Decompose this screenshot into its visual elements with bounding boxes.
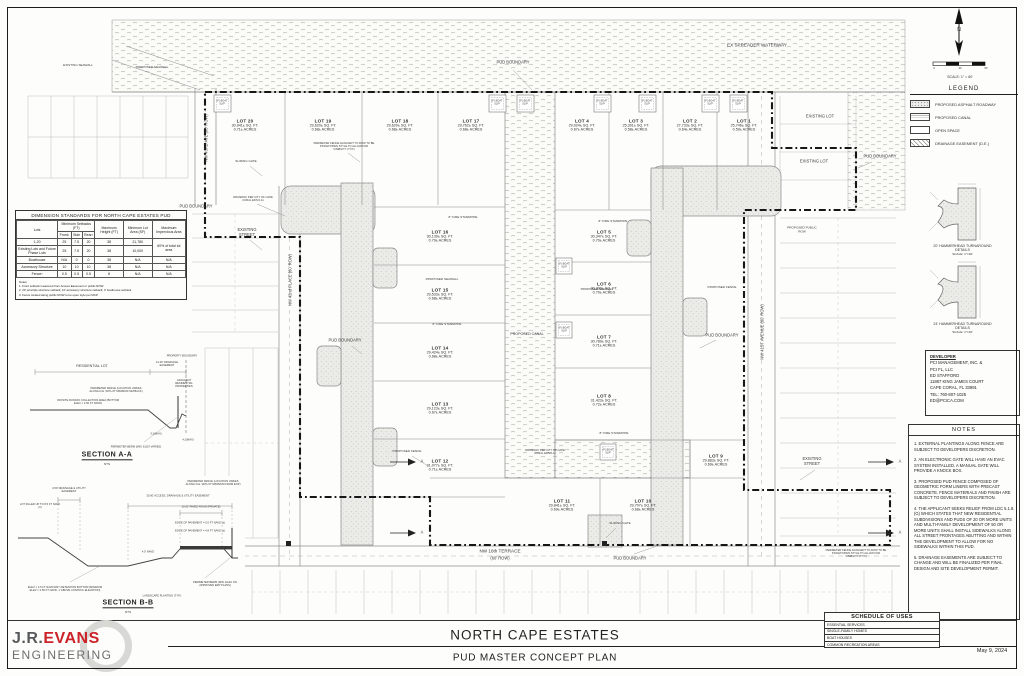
section-marker-a: A xyxy=(421,531,424,536)
driveway-note: DRIVEWAY PER CITY OF CAPE CORAL EDS-5-11 xyxy=(523,449,567,455)
existing-lot-label: EXISTING LOT xyxy=(800,160,828,165)
canal-label: PROPOSED CANAL xyxy=(510,332,544,336)
section-a-label: PERIMETER BERM (MIN. ELEV VARIES) xyxy=(110,445,162,448)
dimension-table-notes: Notes: 1. Front setback measured from Ac… xyxy=(16,278,186,298)
notes-panel: NOTES 1. EXTERNAL PLANTINGS ALONG FENCE … xyxy=(908,424,1020,620)
lot-label: LOT 1429,424± SQ. FT.0.68± ACRES xyxy=(404,346,476,359)
note-item: 4. THE APPLICANT SEEKS RELIEF FROM LDC 5… xyxy=(914,506,1015,550)
boat-slip: (F) BOAT SLIP xyxy=(596,100,609,105)
lot-label: LOT 1630,139± SQ. FT.0.70± ACRES xyxy=(404,230,476,243)
existing-lot-label: EXISTING LOT xyxy=(806,115,834,120)
boat-slip: (F) BOAT SLIP xyxy=(704,100,717,105)
existing-seawall-note: EXISTING SEAWALL xyxy=(61,64,95,68)
dimension-table-grid: Lots Minimum Setbacks (FT) Maximum Heigh… xyxy=(16,220,186,278)
lot-label: LOT 429,024± SQ. FT.0.67± ACRES xyxy=(546,119,618,132)
table-row: Fence³0.50.50.58N/AN/A xyxy=(17,271,186,278)
schedule-of-uses: SCHEDULE OF USES ESSENTIAL SERVICES SING… xyxy=(824,612,940,648)
boat-slip: (F) BOAT SLIP xyxy=(491,100,504,105)
section-b-label: LANDSCAPE PLANTING (TYP.) xyxy=(140,594,184,597)
scale-tick: 30 xyxy=(956,67,964,70)
logo-engineering: ENGINEERING xyxy=(12,648,113,662)
section-a-panel: RESIDENTIAL LOT 12.00' DRAINAGE EASEMENT… xyxy=(12,352,197,470)
street-nw42: NW 42nd PLACE (60' ROW) xyxy=(288,254,293,306)
lot-label: LOT 1729,762± SQ. FT.0.68± ACRES xyxy=(435,119,507,132)
legend-row: PROPOSED ASPHALT ROADWAY xyxy=(910,100,1018,108)
legend-row: PROPOSED CANAL xyxy=(910,113,1018,121)
legend-title: LEGEND xyxy=(910,86,1018,95)
legend-row: OPEN SPACE xyxy=(910,126,1018,134)
lot-label: LOT 929,883± SQ. FT.0.69± ACRES xyxy=(680,454,752,467)
table-row: 1-20257.5203821,78060% of total lot area xyxy=(17,239,186,246)
section-a-title: SECTION A-A xyxy=(82,451,133,460)
lot-label: LOT 730,789± SQ. FT.0.71± ACRES xyxy=(568,335,640,348)
pud-boundary-label: PUD BOUNDARY xyxy=(704,334,740,339)
street-nw16-row: (60' ROW) xyxy=(490,557,509,562)
pud-boundary-label: PUD BOUNDARY xyxy=(327,339,363,344)
boat-slip: (F) BOAT SLIP xyxy=(558,327,571,332)
lot-label: LOT 1129,841± SQ. FT.0.69± ACRES xyxy=(526,499,598,512)
pud-boundary-label: PUD BOUNDARY xyxy=(495,61,531,66)
section-a-label: PROPERTY BOUNDARY xyxy=(164,354,200,357)
section-b-label: 4.5' NAVD xyxy=(142,550,154,553)
proposed-public-row-note: PROPOSED PUBLIC ROW xyxy=(785,226,819,233)
table-row: Accessory Structure10101038N/AN/A xyxy=(17,264,186,271)
perimeter-fence-note: PERIMETER FENCE ADJACENT TO ROW TO BE PI… xyxy=(313,142,375,152)
lot-label: LOT 1529,533± SQ. FT.0.68± ACRES xyxy=(404,288,476,301)
section-a-label: RESIDENTIAL LOT xyxy=(76,364,107,368)
pud-boundary-label: PUD BOUNDARY xyxy=(178,205,214,210)
logo-wordmark: J.R.EVANS xyxy=(12,630,100,648)
section-a-label: PERIMETER FENCE (LOCATION VARIES ALONG D… xyxy=(87,387,145,393)
schedule-row: BOAT HOUSES xyxy=(825,635,939,642)
section-b-label: EDGE OF PAVEMENT = 4.8 FT NAVD (±) xyxy=(172,529,228,532)
pud-boundary-label: PUD BOUNDARY xyxy=(612,557,648,562)
section-b-label: PERIMETER FENCE (LOCATION VARIES ALONG D… xyxy=(183,480,243,486)
lot-label: LOT 831,423± SQ. FT.0.72± ACRES xyxy=(568,394,640,407)
section-b-label: 4.50' DRAINAGE & UTILITY EASEMENT xyxy=(49,487,89,493)
lot-label: LOT 1231,077± SQ. FT.0.71± ACRES xyxy=(404,459,476,472)
section-a-label: 12.00' DRAINAGE EASEMENT xyxy=(149,361,185,367)
lot-label: LOT 1029,707± SQ. FT.0.68± ACRES xyxy=(607,499,679,512)
lot-label: LOT 530,347± SQ. FT.0.70± ACRES xyxy=(568,230,640,243)
section-a-label: OFFSITE RUNOFF COLLECTION AREA (BOTTOM E… xyxy=(56,399,120,405)
asphalt-swatch xyxy=(910,100,930,108)
waterway-label: EX SPREADER WATERWAY xyxy=(727,42,787,48)
boat-slip: (F) BOAT SLIP xyxy=(519,100,532,105)
sliding-gate-note: SLIDING GATE xyxy=(609,522,630,526)
lot-label: LOT 630,300± SQ. FT.0.70± ACRES xyxy=(568,282,640,295)
dimension-standards-table: DIMENSION STANDARDS FOR NORTH CAPE ESTAT… xyxy=(15,210,187,300)
section-b-label: 30.00' ACCESS, DRAINAGE & UTILITY EASEME… xyxy=(141,494,215,497)
proposed-seawall-note: PROPOSED SEAWALL xyxy=(135,66,169,70)
lot-label: LOT 2030,941± SQ. FT.0.71± ACRES xyxy=(209,119,281,132)
lot-label: LOT 1929,620± SQ. FT.0.68± ACRES xyxy=(287,119,359,132)
plan-sheet: EX SPREADER WATERWAY PROPOSED CANAL PUD … xyxy=(0,0,1024,676)
section-b-label: 20.00' PAVED ROAD (PRIVATE) xyxy=(172,505,230,508)
section-b-label: ELEV = 2.5 FT NAVD DRY DETENTION BOTTOM … xyxy=(26,586,104,592)
street-nw41: NW 41ST AVENUE (60' ROW) xyxy=(760,304,765,359)
schedule-title: SCHEDULE OF USES xyxy=(825,613,939,622)
street-nw16: NW 16th TERRACE xyxy=(479,548,520,554)
boat-slip: (F) BOAT SLIP xyxy=(558,263,571,268)
dimension-table-title: DIMENSION STANDARDS FOR NORTH CAPE ESTAT… xyxy=(16,211,186,220)
boat-slip: (F) BOAT SLIP xyxy=(641,100,654,105)
existing-street-label: EXISTING STREET xyxy=(230,228,264,238)
section-b-scale: NTS xyxy=(125,611,131,615)
note-item: 5. DRAINAGE EASEMENTS ARE SUBJECT TO CHA… xyxy=(914,555,1015,572)
fire-standpipe-note: 8" FIRE STANDPIPE xyxy=(449,216,478,220)
section-b-label: PERIMETER BERM (MIN. ELEV ON APPROVED ER… xyxy=(187,581,243,587)
legend-row: DRAINAGE EASEMENT (D.E.) xyxy=(910,139,1018,147)
note-item: 1. EXTERNAL PLANTINGS ALONG FENCE ARE SU… xyxy=(914,441,1015,452)
open-space-swatch xyxy=(910,126,930,134)
canal-swatch xyxy=(910,113,930,121)
turnaround-20-caption: 20' HAMMERHEAD TURNAROUND DETAILS SCALE:… xyxy=(915,244,1010,257)
fire-standpipe-note: 8" FIRE STANDPIPE xyxy=(600,432,629,436)
schedule-row: ESSENTIAL SERVICES xyxy=(825,622,939,629)
lot-label: LOT 1829,620± SQ. FT.0.68± ACRES xyxy=(364,119,436,132)
driveway-note: DRIVEWAY PER CITY OF CAPE CORAL EDS-5-11 xyxy=(231,196,275,202)
boat-slip: (F) BOAT SLIP xyxy=(602,449,615,454)
developer-block: DEVELOPER PCI MANAGEMENT, INC. & PCI FL,… xyxy=(925,350,1020,416)
proposed-seawall-note: PROPOSED SEAWALL xyxy=(425,278,459,282)
fire-standpipe-note: 8" FIRE STANDPIPE xyxy=(433,323,462,327)
notes-title: NOTES xyxy=(909,425,1019,436)
table-row: BoathouseN/A0038N/AN/A xyxy=(17,257,186,264)
section-b-label: LOT FILLED UP TO 8.5 FT NAVD (±) xyxy=(19,503,61,509)
legend: LEGEND PROPOSED ASPHALT ROADWAY PROPOSED… xyxy=(910,86,1018,147)
section-a-label: 4:1(MAX) xyxy=(182,438,193,441)
street-nw43: NW 43RD AVE (60' ROW) xyxy=(204,114,209,162)
boat-slip: (F) BOAT SLIP xyxy=(732,100,745,105)
section-b-title: SECTION B-B xyxy=(103,599,154,608)
note-item: 2. AN ELECTRONIC GATE WILL HAVE AN EVAC … xyxy=(914,457,1015,474)
pud-boundary-label: PUD BOUNDARY xyxy=(862,155,898,160)
note-item: 3. PROPOSED PUD FENCE COMPOSED OF GEOMET… xyxy=(914,479,1015,501)
section-a-label: 3:1(MAX) xyxy=(150,432,161,435)
existing-street-label: EXISTING STREET xyxy=(795,457,829,467)
proposed-fence-note: PROPOSED FENCE xyxy=(392,450,422,454)
turnaround-24-caption: 24' HAMMERHEAD TURNAROUND DETAILS SCALE:… xyxy=(915,322,1010,335)
north-arrow-label: N xyxy=(952,27,966,33)
section-a-label: ADJACENT RESIDENTIAL PROPERTIES xyxy=(170,379,198,389)
boat-slip: (F) BOAT SLIP xyxy=(216,100,229,105)
plan-date: May 9, 2024 xyxy=(977,648,1007,654)
fire-standpipe-note: 8" FIRE STANDPIPE xyxy=(599,220,628,224)
section-marker-a: A xyxy=(899,531,902,536)
scale-label: SCALE: 1" = 60' xyxy=(932,75,988,79)
section-marker-a: A xyxy=(899,460,902,465)
schedule-row: COMMON RECREATION AREAS xyxy=(825,642,939,648)
page-subtitle: PUD MASTER CONCEPT PLAN xyxy=(453,653,617,664)
scale-tick: 0 xyxy=(931,67,937,70)
jr-evans-logo: J.R.EVANS ENGINEERING xyxy=(12,624,172,672)
section-b-panel: LOT FILLED UP TO 8.5 FT NAVD (±) 4.50' D… xyxy=(10,476,245,618)
proposed-fence-note: PROPOSED FENCE xyxy=(707,286,737,290)
lot-label: LOT 1329,123± SQ. FT.0.67± ACRES xyxy=(404,402,476,415)
page-title: NORTH CAPE ESTATES xyxy=(450,628,620,643)
section-b-label: EDGE OF PAVEMENT = 5.0 FT NAVD (±) xyxy=(172,521,228,524)
drainage-easement-swatch xyxy=(910,139,930,147)
schedule-row: SINGLE-FAMILY HOMES xyxy=(825,629,939,636)
section-a-scale: NTS xyxy=(104,463,110,467)
scale-tick: 60 xyxy=(982,67,990,70)
sliding-gate-note: SLIDING GATE xyxy=(235,160,256,164)
perimeter-fence-note: PERIMETER FENCE ADJACENT TO ROW TO BE PI… xyxy=(825,549,887,559)
